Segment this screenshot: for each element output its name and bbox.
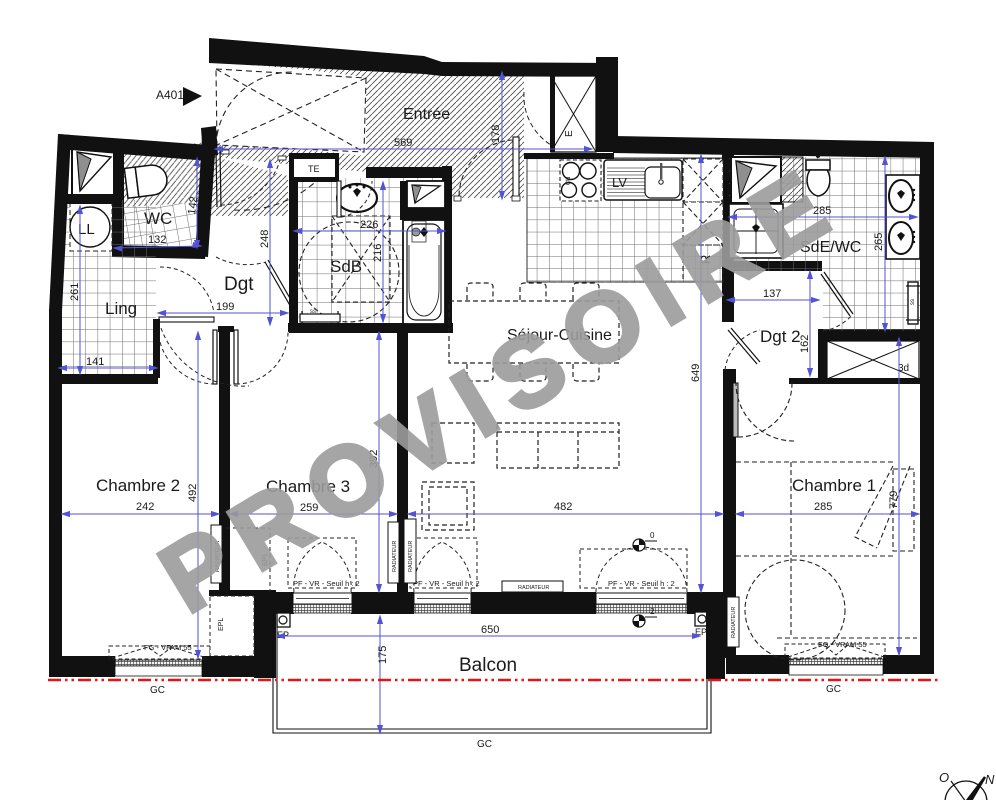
svg-text:Balcon: Balcon [459,655,517,676]
svg-text:ss: ss [910,299,916,305]
svg-text:0: 0 [650,531,655,540]
svg-text:492: 492 [187,484,199,502]
svg-text:RADIATEUR: RADIATEUR [392,541,398,572]
svg-text:569: 569 [394,137,412,149]
svg-text:N: N [985,772,995,787]
svg-text:Dgt: Dgt [224,274,254,295]
svg-text:RADIATEUR: RADIATEUR [731,607,737,638]
svg-text:178: 178 [490,125,502,143]
svg-text:FG - VR: FG - VR [144,643,172,652]
svg-text:LV: LV [612,175,627,190]
svg-text:199: 199 [216,301,234,313]
svg-text:PF - VR - Seuil h : 2: PF - VR - Seuil h : 2 [608,579,675,588]
svg-text:132: 132 [148,234,166,246]
svg-text:AM 55: AM 55 [845,640,867,649]
svg-text:ss: ss [310,309,316,315]
svg-text:PF - VR - Seuil h : 2: PF - VR - Seuil h : 2 [293,579,360,588]
svg-text:175: 175 [377,646,389,664]
svg-text:RADIATEUR: RADIATEUR [408,541,414,572]
svg-text:O: O [939,770,949,785]
svg-text:AM 55: AM 55 [170,643,192,652]
svg-text:2: 2 [650,607,655,616]
svg-text:cu: cu [563,177,572,185]
svg-text:FG - VR: FG - VR [818,640,846,649]
svg-text:779: 779 [888,491,900,509]
svg-text:Ling: Ling [105,299,137,318]
svg-text:242: 242 [136,501,154,513]
svg-text:Entrée: Entrée [403,106,450,123]
svg-text:SdB: SdB [330,257,362,276]
svg-text:Chambre 1: Chambre 1 [792,476,876,495]
svg-text:650: 650 [481,624,499,636]
svg-text:3d: 3d [898,363,909,374]
svg-text:PF - VR - Seuil h : 2: PF - VR - Seuil h : 2 [413,579,480,588]
svg-text:162: 162 [799,335,811,353]
svg-text:216: 216 [372,244,384,262]
svg-text:248: 248 [259,230,271,248]
svg-text:142: 142 [186,196,200,216]
svg-text:649: 649 [690,364,702,382]
svg-text:226: 226 [360,219,378,231]
svg-text:482: 482 [554,501,572,513]
svg-text:GC: GC [477,739,492,750]
svg-text:E: E [564,130,575,137]
svg-text:285: 285 [814,501,832,513]
svg-text:261: 261 [69,283,81,301]
svg-text:A401: A401 [156,88,184,102]
svg-text:RADIATEUR: RADIATEUR [518,585,549,591]
svg-text:GC: GC [826,684,841,695]
svg-text:LL: LL [78,221,95,238]
svg-text:GC: GC [150,685,165,696]
svg-text:Dgt 2: Dgt 2 [760,327,801,346]
svg-text:265: 265 [873,233,885,251]
svg-text:Chambre 2: Chambre 2 [96,476,180,495]
svg-text:141: 141 [86,356,104,368]
svg-text:TE: TE [308,164,320,174]
